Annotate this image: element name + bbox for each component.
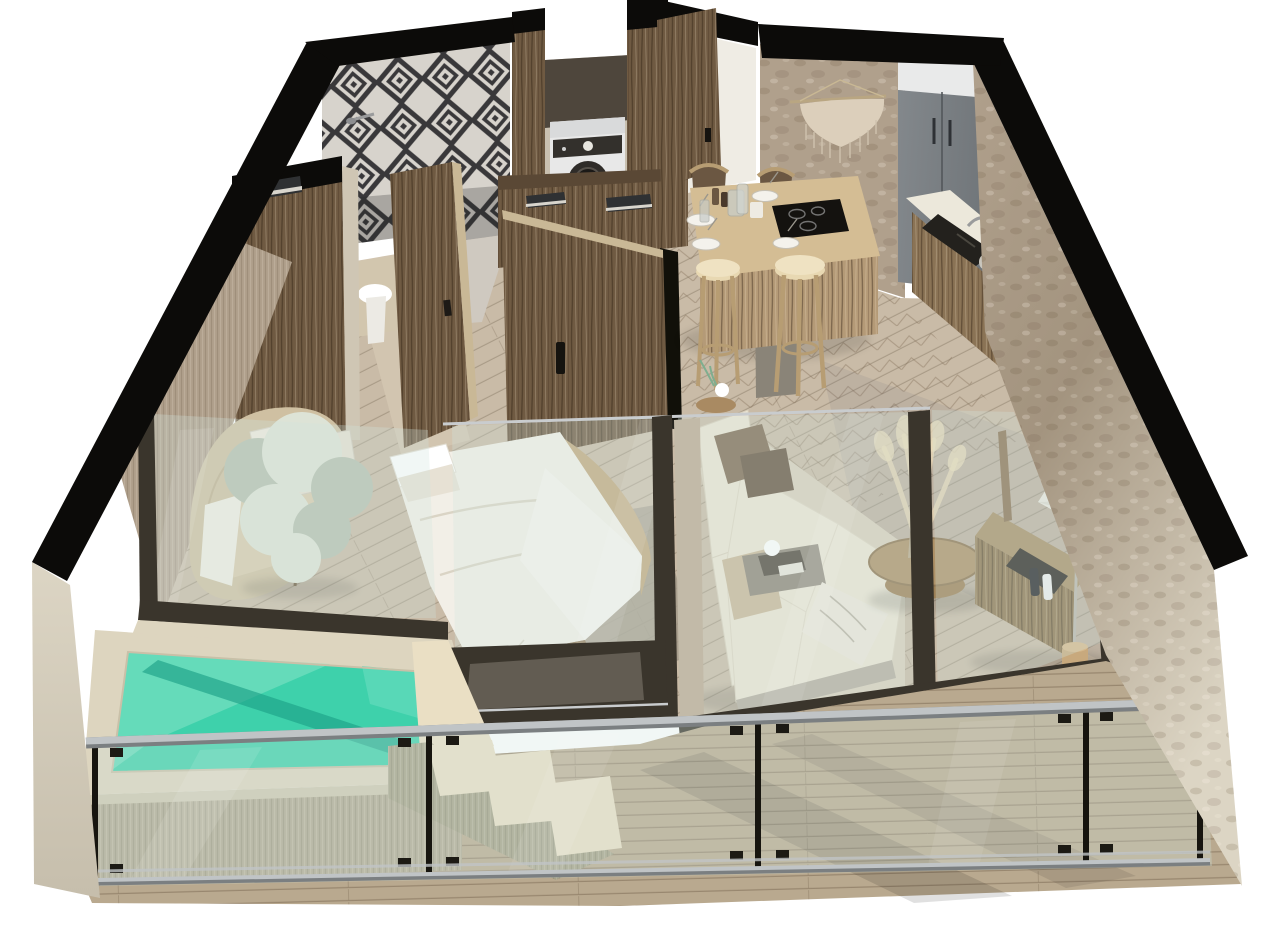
laundry-upper-shadow: [545, 55, 630, 128]
basin-pedestal: [366, 296, 386, 344]
main-door-handle: [556, 342, 565, 374]
upper-door: [657, 8, 721, 188]
bedroom-pool-window: [130, 406, 458, 662]
apartment-3d-floorplan: [0, 0, 1280, 934]
washer-knob: [583, 141, 593, 151]
pillar-cut-top: [512, 8, 545, 34]
upper-door-handle: [705, 128, 711, 142]
apartment-render-stage: 3D cutaway floor plan render of a one-be…: [0, 0, 1280, 934]
